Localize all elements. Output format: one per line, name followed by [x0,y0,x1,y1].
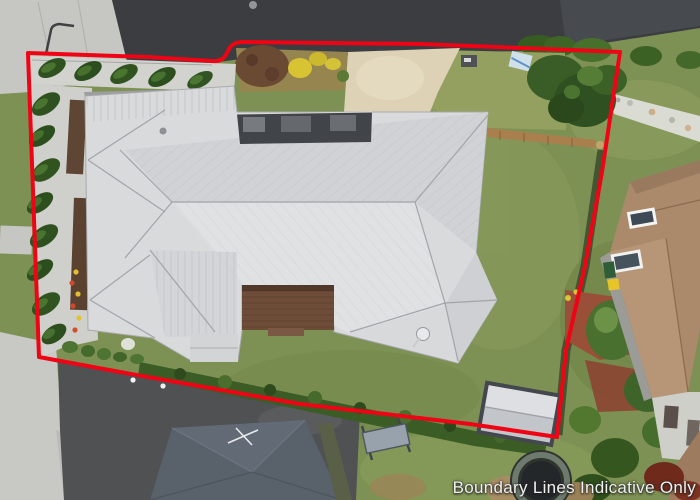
wheelie-bin [603,261,616,278]
yellow-toy [607,278,619,290]
yellow-shrub [325,58,341,70]
front-garden-bed [235,45,349,92]
brown-bush [235,45,289,87]
timber-deck [242,285,334,336]
white-flowering-bush [121,338,135,350]
manhole-cover [249,1,257,9]
white-bird [130,377,135,382]
white-bird [160,383,165,388]
south-neighbour-house [150,420,352,500]
aerial-photo: Boundary Lines Indicative Only [0,0,700,500]
garden-tree [591,438,639,478]
yellow-shrub [309,52,327,66]
roof-vent [160,128,167,135]
photo-canvas [0,0,700,500]
yellow-shrub [288,58,312,78]
boundary-disclaimer-text: Boundary Lines Indicative Only [453,478,696,498]
dirt-patch [370,474,426,500]
